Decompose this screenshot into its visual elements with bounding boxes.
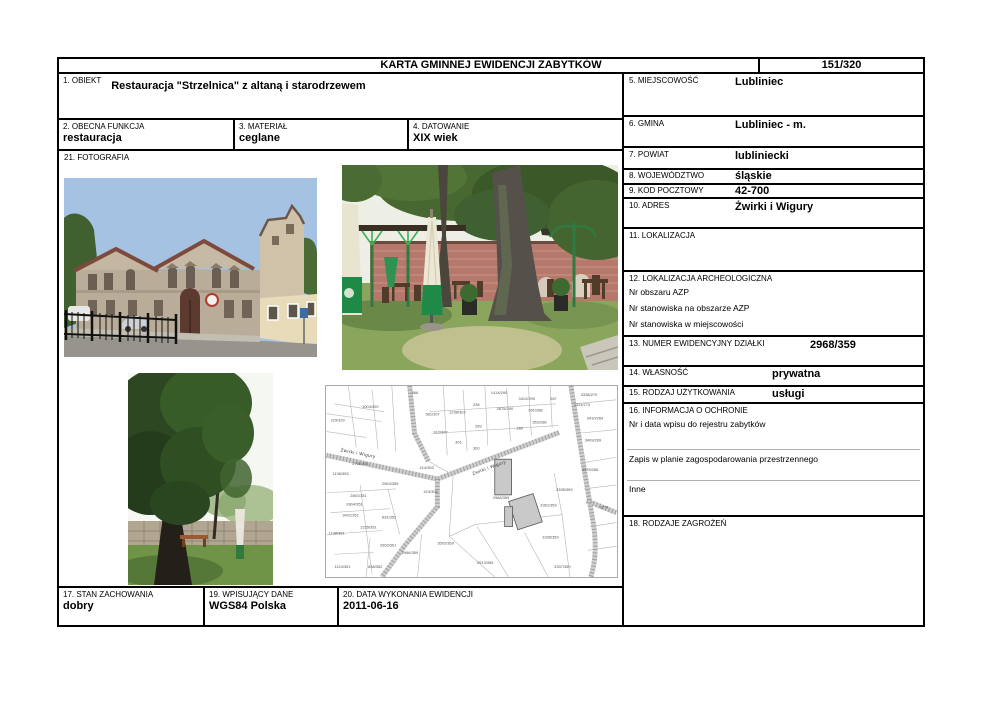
garden-photo xyxy=(342,165,618,370)
svg-text:1238/302: 1238/302 xyxy=(449,410,465,415)
cadastral-map-illustration: 3861414/2903412/2902873338/2701311/27028… xyxy=(326,386,617,577)
field-numer-dzialki-label: 13. NUMER EWIDENCYJNY DZIAŁKI xyxy=(629,339,764,348)
svg-text:3412/290: 3412/290 xyxy=(519,396,536,401)
field-obecna-funkcja-label: 2. OBECNA FUNKCJA xyxy=(63,122,229,131)
closed-umbrella xyxy=(235,509,245,559)
field-adres-value: Żwirki i Wigury xyxy=(735,201,813,213)
svg-text:1414/290: 1414/290 xyxy=(491,390,508,395)
function-material-dating-row: 2. OBECNA FUNKCJA restauracja 3. MATERIA… xyxy=(59,120,622,149)
svg-text:3274: 3274 xyxy=(600,505,610,510)
field-gmina-value: Lubliniec - m. xyxy=(735,119,806,131)
field-powiat: 7. POWIAT lubliniecki xyxy=(624,148,923,168)
field-fotografia: 21. FOTOGRAFIA xyxy=(59,151,622,586)
svg-text:832/352: 832/352 xyxy=(382,515,396,520)
svg-text:300: 300 xyxy=(473,445,480,450)
field-powiat-value: lubliniecki xyxy=(735,150,789,162)
svg-text:3375/266: 3375/266 xyxy=(582,467,599,472)
field-adres: 10. ADRES Żwirki i Wigury xyxy=(624,199,923,227)
field-rodzaj-uzytkowania-label: 15. RODZAJ UŻYTKOWANIA xyxy=(629,388,735,397)
svg-text:301: 301 xyxy=(455,439,462,444)
svg-text:838/352: 838/352 xyxy=(368,564,382,569)
field-miejscowosc-label: 5. MIEJSCOWOŚĆ xyxy=(629,76,698,85)
field-numer-dzialki: 13. NUMER EWIDENCYJNY DZIAŁKI 2968/359 xyxy=(624,337,923,365)
field-data-wykonania: 20. DATA WYKONANIA EWIDENCJI 2011-06-16 xyxy=(339,588,622,625)
bottom-row: 17. STAN ZACHOWANIA dobry 19. WPISUJĄCY … xyxy=(59,588,622,625)
svg-text:3502/359: 3502/359 xyxy=(437,540,453,545)
svg-text:1136/353: 1136/353 xyxy=(332,471,349,476)
svg-text:951/288: 951/288 xyxy=(528,408,543,413)
svg-text:386: 386 xyxy=(412,390,419,395)
svg-text:2801/351: 2801/351 xyxy=(350,493,366,498)
register-entry-line: Nr i data wpisu do rejestru zabytków xyxy=(629,419,766,429)
tree-photo-illustration xyxy=(128,373,273,585)
garden-photo-illustration xyxy=(342,165,618,370)
cadastral-map: 3861414/2903412/2902873338/2701311/27028… xyxy=(325,385,618,578)
field-obecna-funkcja-value: restauracja xyxy=(63,132,229,144)
card-header: KARTA GMINNEJ EWIDENCJI ZABYTKÓW 151/320 xyxy=(59,59,923,72)
svg-text:1138/351: 1138/351 xyxy=(328,530,344,535)
field-lokalizacja-archeologiczna-label: 12. LOKALIZACJA ARCHEOLOGICZNA xyxy=(629,274,772,283)
svg-text:2804/351: 2804/351 xyxy=(346,502,362,507)
svg-text:1124/351: 1124/351 xyxy=(334,564,350,569)
svg-text:2875/290: 2875/290 xyxy=(497,406,514,411)
tree-photo xyxy=(128,373,273,585)
field-stan-zachowania-label: 17. STAN ZACHOWANIA xyxy=(63,590,199,599)
field-datowanie-label: 4. DATOWANIE xyxy=(413,122,618,131)
field-wojewodztwo-label: 8. WOJEWÓDZTWO xyxy=(629,171,704,180)
field-wlasnosc: 14. WŁASNOŚĆ prywatna xyxy=(624,367,923,385)
field-miejscowosc-value: Lubliniec xyxy=(735,76,783,88)
svg-text:3336/359: 3336/359 xyxy=(542,534,558,539)
svg-text:238: 238 xyxy=(473,402,480,407)
svg-text:229/329: 229/329 xyxy=(330,418,344,423)
svg-text:1004/300: 1004/300 xyxy=(362,404,379,409)
svg-text:3410/269: 3410/269 xyxy=(587,416,603,421)
svg-text:3395/359: 3395/359 xyxy=(556,487,572,492)
field-adres-label: 10. ADRES xyxy=(629,201,669,210)
field-wpisujacy-dane-label: 19. WPISUJĄCY DANE xyxy=(209,590,333,599)
field-informacja-o-ochronie: 16. INFORMACJA O OCHRONIE Nr i data wpis… xyxy=(624,404,923,515)
field-datowanie-value: XIX wiek xyxy=(413,132,618,144)
field-material: 3. MATERIAŁ ceglane xyxy=(235,120,407,149)
svg-text:413/304: 413/304 xyxy=(424,489,439,494)
field-lokalizacja-archeologiczna: 12. LOKALIZACJA ARCHEOLOGICZNA Nr obszar… xyxy=(624,272,923,335)
field-gmina-label: 6. GMINA xyxy=(629,119,664,128)
field-obiekt-value: Restauracja "Strzelnica" z altaną i star… xyxy=(111,80,365,92)
svg-text:1311/270: 1311/270 xyxy=(574,402,591,407)
field-wlasnosc-label: 14. WŁASNOŚĆ xyxy=(629,368,688,377)
field-stan-zachowania: 17. STAN ZACHOWANIA dobry xyxy=(59,588,203,625)
svg-text:3337/359: 3337/359 xyxy=(554,564,570,569)
field-rodzaje-zagrozen-label: 18. RODZAJE ZAGROŻEŃ xyxy=(629,519,726,528)
azp-locality-line: Nr stanowiska w miejscowości xyxy=(629,319,743,329)
field-lokalizacja: 11. LOKALIZACJA xyxy=(624,229,923,270)
field-kod-pocztowy-label: 9. KOD POCZTOWY xyxy=(629,186,704,195)
heritage-card-table: KARTA GMINNEJ EWIDENCJI ZABYTKÓW 151/320… xyxy=(57,57,925,627)
svg-text:3409/269: 3409/269 xyxy=(585,437,601,442)
field-data-wykonania-label: 20. DATA WYKONANIA EWIDENCJI xyxy=(343,590,618,599)
divider-line xyxy=(627,449,920,450)
field-stan-zachowania-value: dobry xyxy=(63,600,199,612)
zoning-plan-line: Zapis w planie zagospodarowania przestrz… xyxy=(629,454,818,464)
field-kod-pocztowy-value: 42-700 xyxy=(735,185,769,197)
card-page-number: 151/320 xyxy=(760,59,923,72)
field-gmina: 6. GMINA Lubliniec - m. xyxy=(624,117,923,146)
divider-line xyxy=(627,480,920,481)
svg-text:289: 289 xyxy=(517,426,524,431)
svg-text:414/353: 414/353 xyxy=(420,465,435,470)
right-column: 5. MIEJSCOWOŚĆ Lubliniec 6. GMINA Lublin… xyxy=(624,74,923,625)
field-obiekt-label: 1. OBIEKT xyxy=(63,76,101,85)
field-rodzaj-uzytkowania: 15. RODZAJ UŻYTKOWANIA usługi xyxy=(624,387,923,402)
svg-text:2963/359: 2963/359 xyxy=(382,481,398,486)
field-obecna-funkcja: 2. OBECNA FUNKCJA restauracja xyxy=(59,120,233,149)
svg-text:2968/359: 2968/359 xyxy=(493,495,509,500)
field-miejscowosc: 5. MIEJSCOWOŚĆ Lubliniec xyxy=(624,74,923,115)
field-powiat-label: 7. POWIAT xyxy=(629,150,669,159)
field-kod-pocztowy: 9. KOD POCZTOWY 42-700 xyxy=(624,185,923,197)
field-wpisujacy-dane-value: WGS84 Polska xyxy=(209,600,333,612)
left-column: 1. OBIEKTRestauracja "Strzelnica" z alta… xyxy=(59,74,622,625)
field-informacja-o-ochronie-label: 16. INFORMACJA O OCHRONIE xyxy=(629,406,748,415)
field-numer-dzialki-value: 2968/359 xyxy=(810,339,856,351)
field-material-value: ceglane xyxy=(239,132,403,144)
svg-text:912/307: 912/307 xyxy=(433,430,447,435)
svg-text:3401/351: 3401/351 xyxy=(342,513,358,518)
azp-site-line: Nr stanowiska na obszarze AZP xyxy=(629,303,749,313)
svg-text:287: 287 xyxy=(550,396,557,401)
field-data-wykonania-value: 2011-06-16 xyxy=(343,600,618,612)
field-lokalizacja-label: 11. LOKALIZACJA xyxy=(629,231,695,240)
document-page: KARTA GMINNEJ EWIDENCJI ZABYTKÓW 151/320… xyxy=(0,0,992,701)
other-line: Inne xyxy=(629,484,646,494)
tree-right xyxy=(302,238,317,298)
azp-area-line: Nr obszaru AZP xyxy=(629,287,689,297)
building-photo-illustration xyxy=(64,178,317,357)
svg-text:3338/270: 3338/270 xyxy=(581,392,598,397)
building-photo xyxy=(64,178,317,357)
svg-text:1235/351: 1235/351 xyxy=(360,525,376,530)
pergola-beam xyxy=(348,225,466,231)
field-wojewodztwo: 8. WOJEWÓDZTWO śląskie xyxy=(624,170,923,183)
svg-text:2913/359: 2913/359 xyxy=(477,560,493,565)
field-obiekt: 1. OBIEKTRestauracja "Strzelnica" z alta… xyxy=(59,74,622,118)
svg-text:952/288: 952/288 xyxy=(532,420,547,425)
svg-text:3361/359: 3361/359 xyxy=(540,503,556,508)
field-datowanie: 4. DATOWANIE XIX wiek xyxy=(409,120,622,149)
field-rodzaje-zagrozen: 18. RODZAJE ZAGROŻEŃ xyxy=(624,517,923,625)
svg-text:299: 299 xyxy=(475,424,482,429)
svg-text:2756/351: 2756/351 xyxy=(352,461,368,466)
svg-text:2966/359: 2966/359 xyxy=(402,550,418,555)
svg-text:2963/361: 2963/361 xyxy=(380,542,396,547)
field-wlasnosc-value: prywatna xyxy=(772,368,820,380)
svg-text:581/307: 581/307 xyxy=(425,412,439,417)
round-sign xyxy=(206,294,218,306)
field-wpisujacy-dane: 19. WPISUJĄCY DANE WGS84 Polska xyxy=(205,588,337,625)
field-wojewodztwo-value: śląskie xyxy=(735,170,772,182)
field-material-label: 3. MATERIAŁ xyxy=(239,122,403,131)
field-fotografia-label: 21. FOTOGRAFIA xyxy=(64,153,129,162)
field-rodzaj-uzytkowania-value: usługi xyxy=(772,388,804,400)
